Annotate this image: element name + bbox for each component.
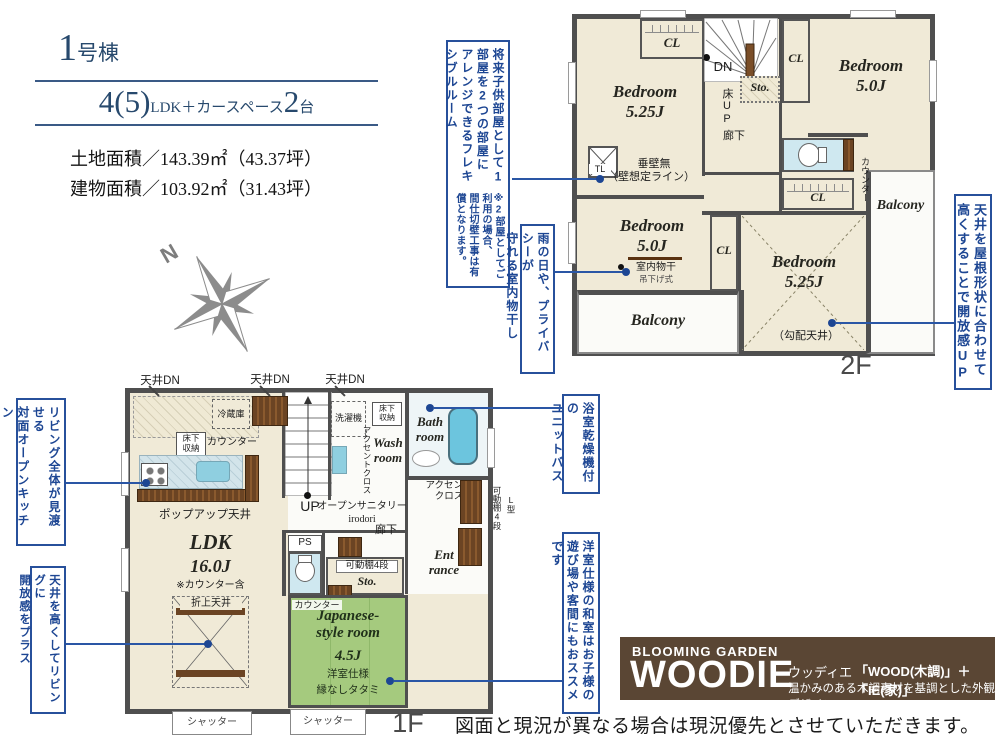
annotation-open-kitchen: リビング全体が見渡せる 対面オープンキッチン （食洗器付き） (16, 398, 66, 546)
bath-stool-icon (412, 450, 440, 467)
leader-dot (386, 677, 394, 685)
land-area: 土地面積／143.39㎡（43.37坪） (70, 144, 322, 174)
brand-desc: 温かみのある木調素材を基調とした外観デザイン (788, 680, 995, 712)
ldk-label: LDK (163, 530, 258, 554)
annotation-flexible-main: 将来子供部屋として1部屋を2つの部屋に アレンジできるフレキシブルルーム (443, 48, 505, 193)
leader-line (394, 680, 562, 682)
sink-icon (196, 461, 230, 482)
movable-shelf (338, 537, 362, 557)
leader-dot (596, 175, 604, 183)
wall (322, 533, 325, 595)
wall (808, 133, 868, 137)
shelf4-label: 可動棚4段 (488, 478, 501, 538)
plan-rooms: 4(5) (99, 84, 151, 119)
entrance-label: Ent rance (418, 548, 470, 578)
annotation-roof-ceiling: 天井を屋根形状に合わせて 高くすることで開放感UP (954, 194, 992, 390)
annotation-living-ceiling: 天井を高くしてリビングに 開放感をプラス (30, 566, 66, 714)
entrance-shelf (460, 480, 482, 524)
balcony-label: Balcony (600, 312, 716, 330)
floor2-label: 2F (824, 350, 888, 381)
hanger-rail-icon (645, 25, 699, 33)
floor1-stairs (285, 392, 332, 496)
wall (282, 530, 286, 596)
toilet-tank-icon (298, 555, 312, 563)
annotation-indoor-drying: 雨の日や、プライバシーが 守れる室内物干し (520, 224, 555, 374)
shutter-label: シャッター (290, 716, 366, 728)
annotation-flexible-room: 将来子供部屋として1部屋を2つの部屋に アレンジできるフレキシブルルーム ※2部… (446, 40, 510, 288)
leader-line (554, 271, 626, 273)
leader-dot (142, 479, 150, 487)
stairs-icon (285, 392, 332, 496)
closet-label: CL (782, 191, 854, 205)
oriage-label: 折上天井 (180, 598, 242, 610)
brand-banner: BLOOMING GARDEN WOODIE ウッディエ 「WOOD(木調)」＋… (620, 637, 995, 700)
window (487, 428, 495, 468)
annotation-unit-bath: 浴室乾燥機付の ユニットバス (562, 394, 600, 494)
leader-dot (622, 268, 630, 276)
kobai-label: （勾配天井） (754, 330, 858, 343)
bathtub-icon (448, 407, 478, 465)
plan-summary: 4(5)LDK＋カースペース2台 (35, 84, 378, 120)
floor1-label: 1F (378, 708, 438, 739)
closet-label: CL (640, 36, 704, 51)
floor-storage-label: 床下 収納 (373, 404, 401, 422)
toilet-icon (295, 560, 315, 582)
floor-storage-label: 床下 収納 (177, 434, 205, 454)
building-number: 1 (58, 27, 77, 69)
pantry-shelf (252, 396, 288, 426)
building-title: 1号棟 (58, 26, 119, 70)
toilet-tank-icon (818, 147, 827, 163)
window (850, 10, 896, 18)
leader-line (66, 482, 146, 484)
annotation-flexible-note: ※2部屋としてご利用の場合、 間仕切壁工事は有償となります。 (453, 193, 505, 280)
tatami-edge-label: 縁なしタタミ (292, 684, 404, 696)
ldk-size-label: 16.0J (163, 556, 258, 577)
kitchen-counter-wood (245, 455, 259, 502)
plan-cars: 2 (284, 84, 300, 119)
japanese-room-label: Japanese- style room (292, 608, 404, 643)
closet-label: CL (782, 52, 810, 66)
plan-ldk: LDK＋カースペース (150, 100, 283, 116)
leader-line (836, 322, 954, 324)
hall-label: 廊下 (368, 524, 404, 537)
vanity-icon (332, 446, 347, 474)
annotation-tatami: 洋室仕様の和室はお子様の 遊び場や客間にもおススメです (562, 532, 600, 714)
tsurisage-label: 吊下げ式 (628, 275, 684, 285)
ceiling-dn-label: 天井DN (133, 375, 187, 388)
counter-label: カウンター (292, 600, 342, 610)
building-area: 建物面積／103.92㎡（31.43坪） (70, 174, 322, 204)
drying-rail-icon (628, 257, 682, 260)
bedroom-label: Bedroom 5.25J (585, 82, 705, 121)
brand-ruby: ウッディエ (788, 662, 852, 681)
header-divider-bottom (35, 124, 378, 126)
leader-dot (204, 640, 212, 648)
wall (577, 195, 704, 199)
kabe-line-label: （壁想定ライン） (604, 171, 698, 184)
bathroom-label: Bath room (408, 415, 452, 445)
compass-icon: N (150, 238, 285, 363)
kitchen-counter-label: カウンター (204, 437, 260, 449)
l-type-label: L型 (502, 490, 515, 518)
leader-line (434, 407, 562, 409)
header-divider-top (35, 80, 378, 82)
window (121, 452, 129, 496)
open-sanitary-label: オープンサニタリー (316, 501, 408, 513)
ceiling-beam (176, 670, 245, 677)
area-info: 土地面積／143.39㎡（43.37坪） 建物面積／103.92㎡（31.43坪… (70, 144, 322, 204)
popup-ceiling-label: ポップアップ天井 (148, 509, 262, 522)
fridge-label: 冷蔵庫 (213, 409, 249, 419)
floor-up-label: 床UP (718, 84, 733, 130)
shelf4-label: 可動棚4段 (336, 560, 398, 573)
shutter-label: シャッター (172, 717, 252, 729)
floorplan-flyer: 1号棟 4(5)LDK＋カースペース2台 土地面積／143.39㎡（43.37坪… (0, 0, 1000, 750)
closet-label: CL (710, 244, 738, 258)
hall-label: 廊下 (712, 130, 756, 143)
bedroom-label: Bedroom 5.25J (750, 252, 858, 291)
plan-cars-unit: 台 (299, 100, 314, 116)
ps-label: PS (288, 537, 322, 549)
toilet-icon (798, 143, 820, 167)
window (568, 222, 576, 264)
ldk-note-label: ※カウンター含 (158, 580, 263, 592)
balcony-label: Balcony (866, 198, 935, 214)
ceiling-dn-label: 天井DN (318, 374, 372, 387)
counter-shelf (843, 139, 854, 171)
washroom-label: Wash room (368, 436, 408, 466)
storage-label: Sto. (350, 575, 384, 589)
window (121, 548, 129, 592)
bedroom-label: Bedroom 5.0J (812, 56, 930, 95)
leader-line (512, 178, 600, 180)
window (929, 60, 937, 102)
svg-text:N: N (156, 239, 182, 269)
dn-label: DN (706, 60, 740, 75)
tarekabe-label: 垂壁無 (626, 158, 682, 171)
disclaimer-text: 図面と現況が異なる場合は現況優先とさせていただきます。 (455, 711, 995, 738)
japanese-room-size: 4.5J (292, 648, 404, 665)
compass-rose: N (150, 238, 285, 363)
leader-line (66, 643, 208, 645)
wall (702, 172, 782, 175)
kitchen-counter-wood (137, 489, 259, 502)
ceiling-dn-label: 天井DN (243, 374, 297, 387)
brand-name: WOODIE (630, 654, 794, 697)
window (640, 10, 686, 18)
monohoshi-label: 室内物干 (624, 262, 688, 274)
leader-dot (828, 319, 836, 327)
bedroom-label: Bedroom 5.0J (592, 216, 712, 255)
building-suffix: 号棟 (77, 41, 119, 65)
leader-dot (426, 404, 434, 412)
storage-label: Sto. (742, 81, 778, 95)
window (568, 62, 576, 104)
